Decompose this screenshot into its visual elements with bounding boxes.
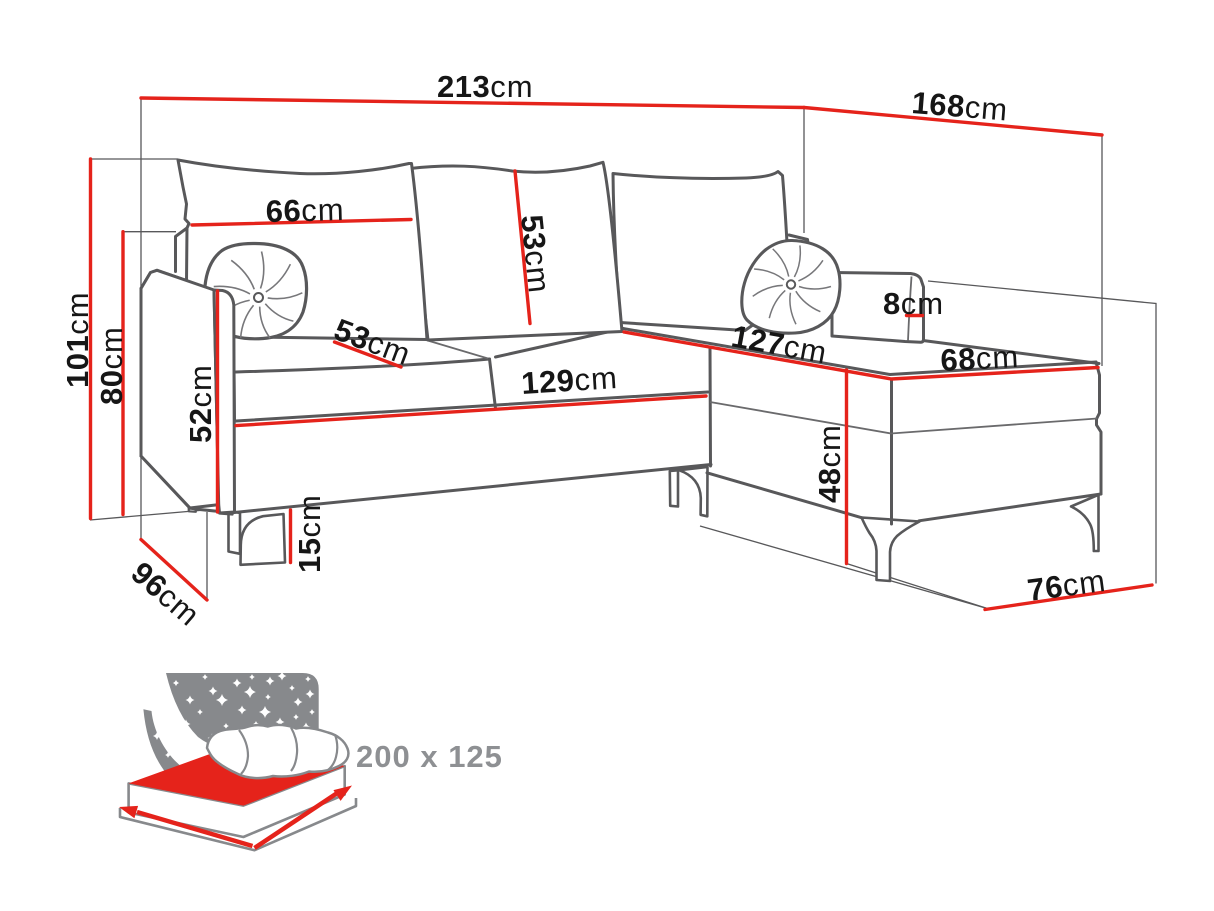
svg-text:101cm: 101cm xyxy=(60,291,95,388)
svg-text:168cm: 168cm xyxy=(910,85,1009,127)
svg-text:66cm: 66cm xyxy=(265,192,345,229)
svg-text:68cm: 68cm xyxy=(940,339,1021,378)
svg-text:15cm: 15cm xyxy=(292,494,327,573)
svg-text:96cm: 96cm xyxy=(124,555,206,633)
svg-text:80cm: 80cm xyxy=(94,326,129,405)
svg-text:8cm: 8cm xyxy=(883,286,944,321)
svg-text:129cm: 129cm xyxy=(520,360,619,401)
svg-text:200 x 125: 200 x 125 xyxy=(356,739,503,774)
svg-text:48cm: 48cm xyxy=(812,424,847,503)
svg-text:213cm: 213cm xyxy=(437,69,534,104)
svg-text:52cm: 52cm xyxy=(183,364,218,443)
svg-text:76cm: 76cm xyxy=(1025,563,1108,608)
